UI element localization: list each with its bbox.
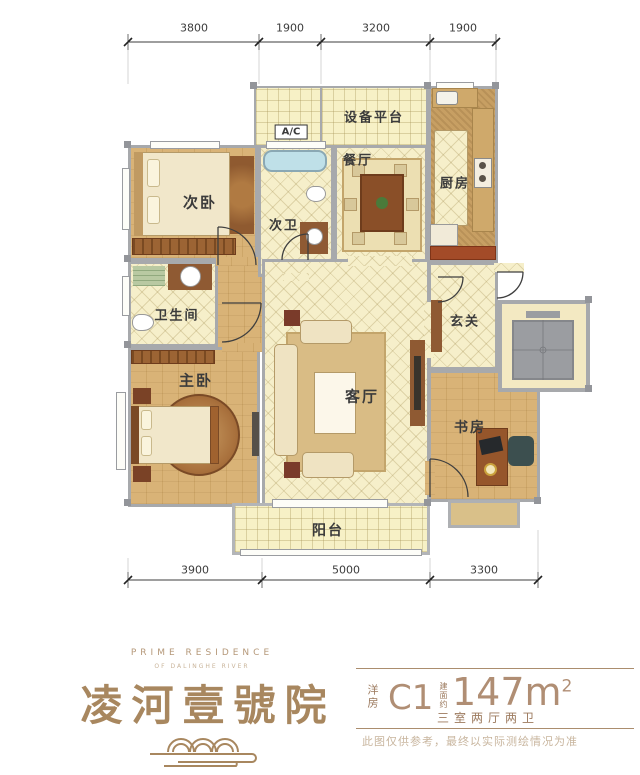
living-tv xyxy=(414,356,421,410)
living-seat xyxy=(300,320,352,344)
master-wardrobe xyxy=(131,350,215,364)
window-bedroom2-left xyxy=(122,168,130,230)
study-clock xyxy=(484,463,497,476)
cloud-motif-icon xyxy=(140,732,268,772)
elevator-door xyxy=(526,311,560,318)
dim-top-4: 1900 xyxy=(449,22,477,35)
label-bedroom2: 次卧 xyxy=(183,192,217,213)
dim-bottom-2: 5000 xyxy=(332,564,360,577)
dim-top-2: 1900 xyxy=(276,22,304,35)
ac-ledge xyxy=(448,500,520,528)
dining-chair xyxy=(344,198,357,211)
wall-pillar xyxy=(124,499,131,506)
opening-bedroom2-door xyxy=(216,257,258,266)
kitchen-counter-bottom xyxy=(430,246,496,260)
wall-pillar xyxy=(250,82,257,89)
brand-en-title: PRIME RESIDENCE xyxy=(92,648,312,658)
unit-type-label: 洋房 xyxy=(364,684,380,710)
dining-plant xyxy=(376,197,388,209)
wall-pillar xyxy=(585,296,592,303)
opening-dining-living xyxy=(348,256,412,266)
bath2-toilet xyxy=(306,186,326,202)
area-superscript: 2 xyxy=(562,676,573,696)
dining-chair xyxy=(394,232,407,245)
window-master-bay xyxy=(116,392,126,470)
window-living-balcony xyxy=(272,499,388,508)
label-balcony: 阳台 xyxy=(312,520,344,540)
wall-pillar xyxy=(124,255,131,262)
master-pillow xyxy=(141,436,152,456)
living-seat xyxy=(302,452,354,478)
label-dining: 餐厅 xyxy=(343,150,373,169)
study-chair xyxy=(508,436,534,466)
label-foyer: 玄关 xyxy=(450,311,480,330)
bedroom2-pillow xyxy=(147,159,160,187)
bath2-sink xyxy=(306,228,323,245)
label-living: 客厅 xyxy=(345,386,379,407)
elevator-car xyxy=(512,320,574,380)
kitchen-sink xyxy=(436,91,458,105)
wall-pillar xyxy=(424,499,431,506)
foyer-shoe-cabinet xyxy=(431,300,442,352)
wall-pillar xyxy=(585,385,592,392)
master-pillow xyxy=(141,410,152,430)
opening-entry-door xyxy=(494,263,524,272)
dim-bottom-3: 3300 xyxy=(470,564,498,577)
label-master-bedroom: 主卧 xyxy=(179,370,213,391)
wall-pillar xyxy=(492,82,499,89)
kitchen-burner xyxy=(479,175,486,182)
bedroom2-pillow xyxy=(147,196,160,224)
opening-master-door xyxy=(222,343,262,352)
brand-cn-name: 凌河壹號院 xyxy=(40,672,376,733)
area-number: 147m xyxy=(452,670,562,714)
label-bathroom: 卫生间 xyxy=(154,305,199,324)
disclaimer-text: 此图仅供参考，最终以实际测绘情况为准 xyxy=(362,733,578,749)
dining-chair xyxy=(352,232,365,245)
wall-pillar xyxy=(424,82,431,89)
master-nightstand xyxy=(133,466,151,482)
living-sofa xyxy=(274,344,298,456)
window-balcony-front xyxy=(240,549,422,556)
window-bath2-top xyxy=(266,141,326,149)
label-equipment-platform: 设备平台 xyxy=(344,107,404,126)
master-nightstand xyxy=(133,388,151,404)
label-bath2: 次卫 xyxy=(269,215,299,234)
area-value: 147m2 xyxy=(452,670,572,714)
bedroom2-wardrobe xyxy=(132,238,236,255)
brand-en-subtitle: OF DALINGHE RIVER xyxy=(92,663,312,670)
dim-top-1: 3800 xyxy=(180,22,208,35)
window-bedroom2-top xyxy=(150,141,220,149)
bathroom-mat xyxy=(133,266,165,286)
master-headboard xyxy=(131,406,139,464)
living-side-table xyxy=(284,462,300,478)
layout-text: 三室两厅两卫 xyxy=(437,709,539,726)
living-side-table xyxy=(284,310,300,326)
dim-top-3: 3200 xyxy=(362,22,390,35)
label-kitchen: 厨房 xyxy=(440,173,470,192)
master-footboard xyxy=(210,406,219,464)
wall-pillar xyxy=(124,141,131,148)
label-ac: A/C xyxy=(275,125,308,140)
bedroom2-headboard xyxy=(134,152,143,236)
bedroom2-rug xyxy=(230,156,254,234)
kitchen-burner xyxy=(479,162,486,169)
wall-pillar xyxy=(124,341,131,348)
bathroom-toilet xyxy=(132,314,154,331)
bath2-bathtub xyxy=(263,150,327,172)
opening-bath2-door xyxy=(283,273,309,281)
dim-bottom-1: 3900 xyxy=(181,564,209,577)
kitchen-fridge xyxy=(430,224,458,246)
info-rule-top xyxy=(356,668,634,669)
wall-pillar xyxy=(534,497,541,504)
unit-code: C1 xyxy=(388,678,433,718)
floor-plan-page: 设备平台 厨房 次卧 次卫 餐厅 卫生间 玄关 主卧 客厅 书房 阳台 A/C … xyxy=(0,0,640,775)
window-bathroom-left xyxy=(122,276,130,316)
dining-chair xyxy=(406,198,419,211)
master-tv-panel xyxy=(252,412,259,456)
bathroom-sink xyxy=(180,266,201,287)
area-label: 建面约 xyxy=(438,682,449,709)
opening-study-door xyxy=(425,461,435,495)
info-rule-bottom xyxy=(356,728,634,729)
label-study: 书房 xyxy=(454,417,486,437)
